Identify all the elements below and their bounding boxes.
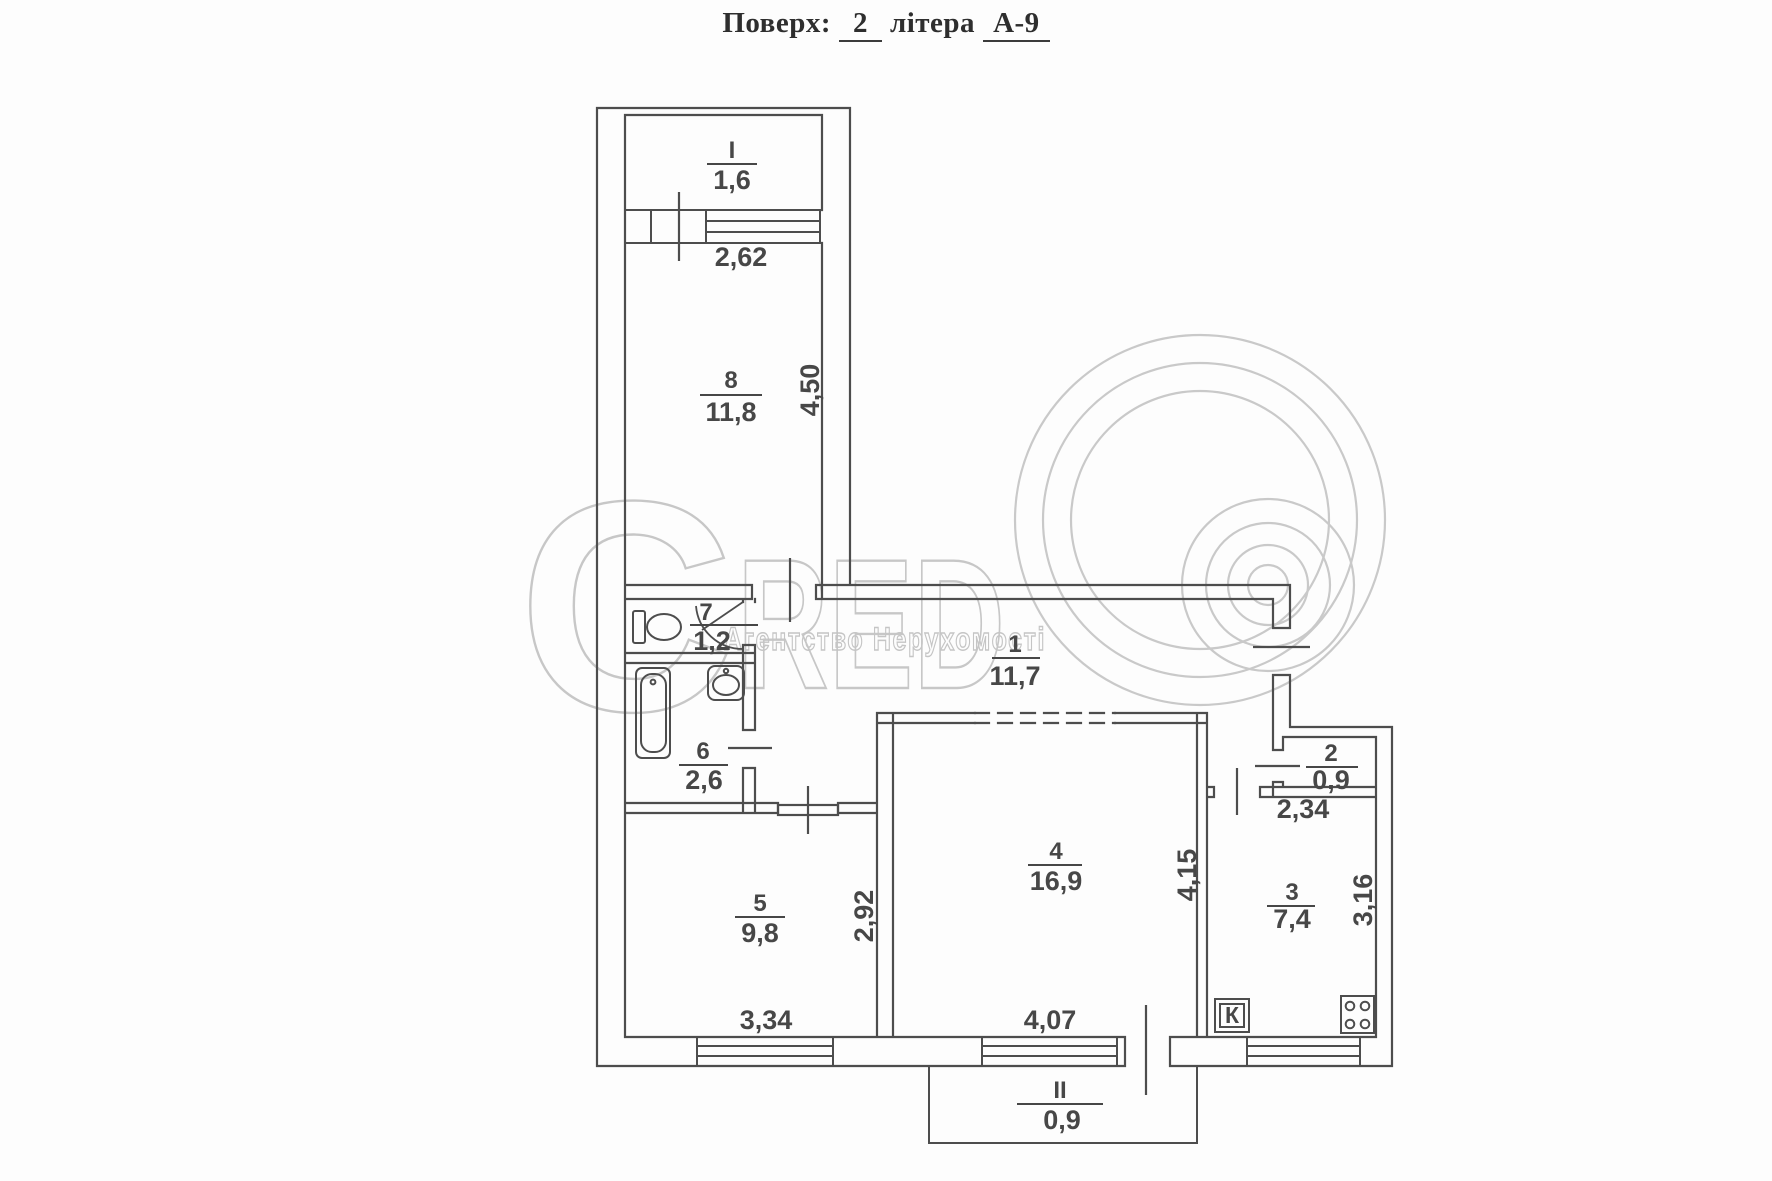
room-number: 7 [699, 599, 712, 626]
dim-room-8-height: 4,50 [795, 364, 825, 417]
room-number: 4 [1049, 838, 1063, 865]
dim-room-4-height: 4,15 [1172, 849, 1202, 902]
dim-balcony-top-width: 2,62 [715, 242, 768, 272]
room-5-label: 5 9,8 [735, 890, 785, 948]
balcony-bottom-label: II 0,9 [1017, 1077, 1103, 1135]
room-area: 11,7 [989, 661, 1040, 691]
watermark-o-rings [1015, 335, 1385, 705]
room-area: 1,6 [713, 165, 751, 195]
dim-room-5-height: 2,92 [849, 890, 879, 943]
room-area: 9,8 [741, 918, 779, 948]
dim-room-4-width: 4,07 [1024, 1005, 1077, 1035]
kitchen-marker-label: К [1225, 1002, 1240, 1028]
room-number: 5 [753, 890, 766, 917]
watermark-subtitle: Агентство Нерухомості [724, 621, 1046, 657]
dim-room-5-width: 3,34 [740, 1005, 793, 1035]
room-area: 11,8 [705, 397, 756, 427]
room-area: 0,9 [1312, 765, 1350, 795]
room-5-window [697, 1037, 833, 1066]
room-number: I [729, 137, 736, 164]
room-3-label: 3 7,4 [1267, 879, 1315, 934]
balcony-top-label: I 1,6 [707, 137, 757, 195]
room-4-label: 4 16,9 [1028, 838, 1082, 896]
balcony-top-window [625, 210, 822, 243]
floor-plan-drawing: C RED Агентство Нерухомості [0, 0, 1772, 1181]
room-number: 6 [696, 738, 709, 765]
room-area: 16,9 [1030, 866, 1083, 896]
room-number: II [1053, 1077, 1066, 1104]
room-number: 3 [1285, 879, 1298, 906]
room-8-label: 8 11,8 [700, 367, 762, 427]
room-area: 7,4 [1273, 904, 1311, 934]
stove-icon [1341, 996, 1374, 1033]
room-area: 0,9 [1043, 1105, 1081, 1135]
room-number: 8 [724, 367, 737, 394]
room-3-window [1247, 1037, 1360, 1066]
room-area: 2,6 [685, 765, 723, 795]
dim-room-3-height: 3,16 [1348, 874, 1378, 927]
dim-room-2-width: 2,34 [1277, 794, 1330, 824]
floor-plan-page: Поверх:2літераА-9 C RED Агентство Нерухо… [0, 0, 1772, 1181]
room-4-window [982, 1037, 1117, 1066]
watermark-logo: C RED Агентство Нерухомості [518, 335, 1385, 774]
room-number: 1 [1008, 631, 1021, 658]
room-number: 2 [1324, 740, 1337, 767]
room-area: 1,2 [693, 626, 731, 656]
